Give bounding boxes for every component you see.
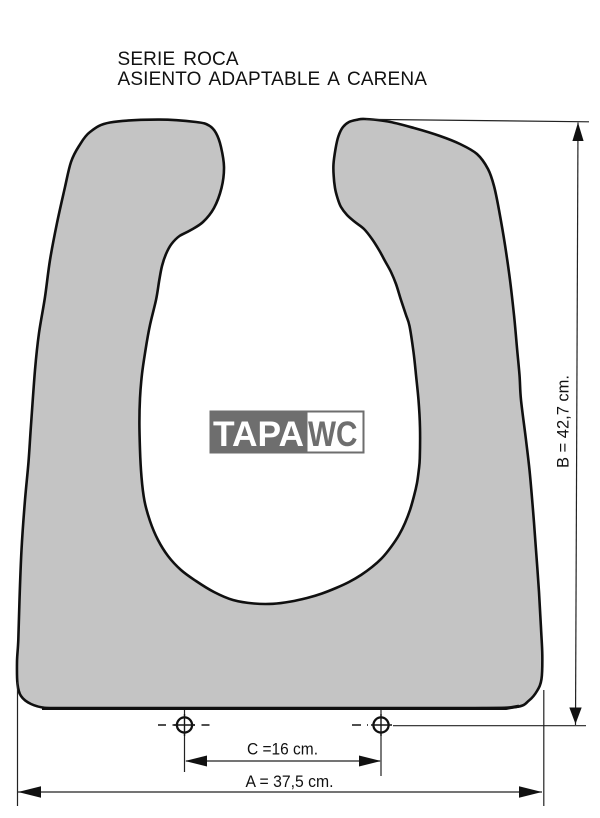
svg-text:C =16 cm.: C =16 cm. xyxy=(247,740,318,759)
svg-text:A = 37,5 cm.: A = 37,5 cm. xyxy=(246,772,334,791)
svg-text:TAPA: TAPA xyxy=(213,415,304,454)
svg-text:WC: WC xyxy=(308,415,358,454)
svg-text:B = 42,7 cm.: B = 42,7 cm. xyxy=(554,375,573,468)
